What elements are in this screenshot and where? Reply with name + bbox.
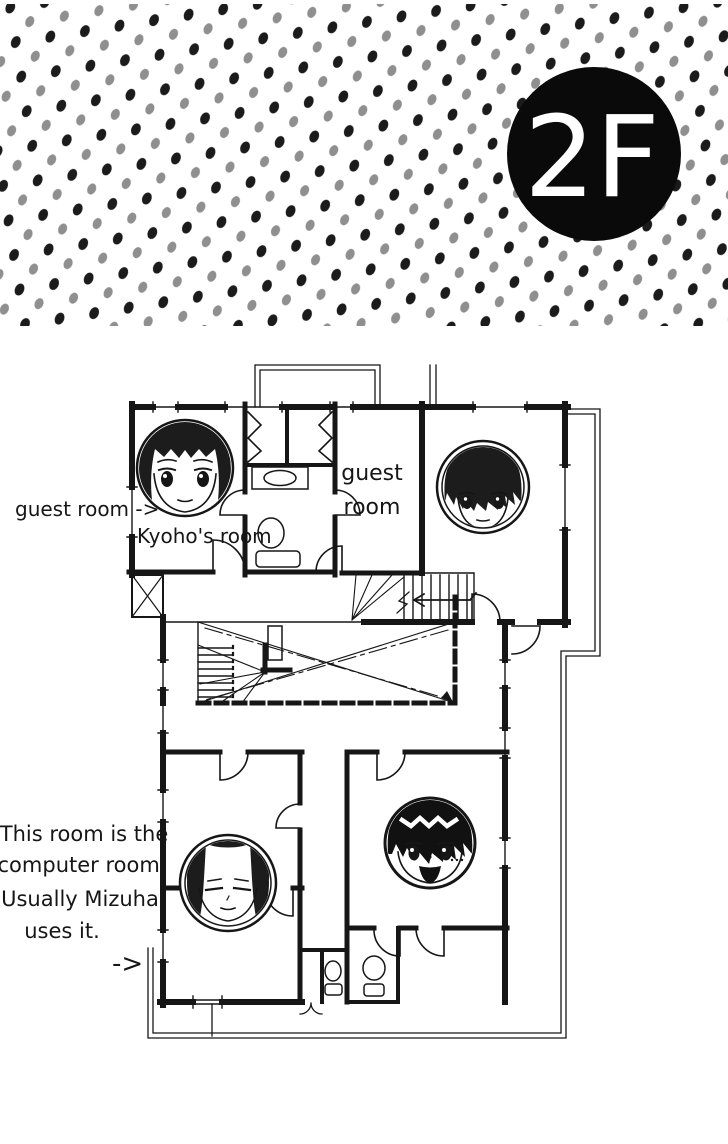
left-guest-room-label: guest room -> xyxy=(15,497,159,521)
atrium-void xyxy=(165,597,455,703)
bathroom-fixtures xyxy=(252,467,385,996)
toilet-3-tank xyxy=(364,984,384,996)
shaft-box xyxy=(132,575,163,617)
stairs-break-mark xyxy=(397,592,409,613)
computer-room-note-line4: uses it. xyxy=(24,919,100,943)
floor-badge-label: 2F xyxy=(524,93,660,223)
stairs-lower xyxy=(198,645,265,703)
computer-room-note-arrow: -> xyxy=(112,949,143,979)
toilet-2-bowl xyxy=(325,961,341,981)
closet-symbols xyxy=(248,412,332,462)
washbasin-sink xyxy=(264,471,296,486)
computer-room-note-line3: Usually Mizuha xyxy=(1,887,159,911)
center-guest-room-label-line2: room xyxy=(344,495,401,520)
computer-room-note-line2: computer room. xyxy=(0,853,166,877)
manga-floorplan-page: 2F xyxy=(0,0,728,1144)
smiling-black-haired-boy-face xyxy=(385,798,475,888)
center-parted-hair-face xyxy=(180,835,276,931)
center-guest-room-label-line1: guest xyxy=(341,461,403,486)
void-pillar xyxy=(268,626,282,660)
kyoho-room-label: Kyoho's room xyxy=(137,524,272,548)
computer-room-note-line1: This room is the xyxy=(0,822,168,846)
floor-plan: guest room -> Kyoho's room guest room Th… xyxy=(0,365,600,1038)
shaggy-haired-boy-face xyxy=(437,441,529,533)
floor-badge: 2F xyxy=(507,67,681,241)
toilet-2-tank xyxy=(325,984,342,995)
toilet-3-bowl xyxy=(363,956,385,980)
toilet-tank xyxy=(256,551,300,567)
